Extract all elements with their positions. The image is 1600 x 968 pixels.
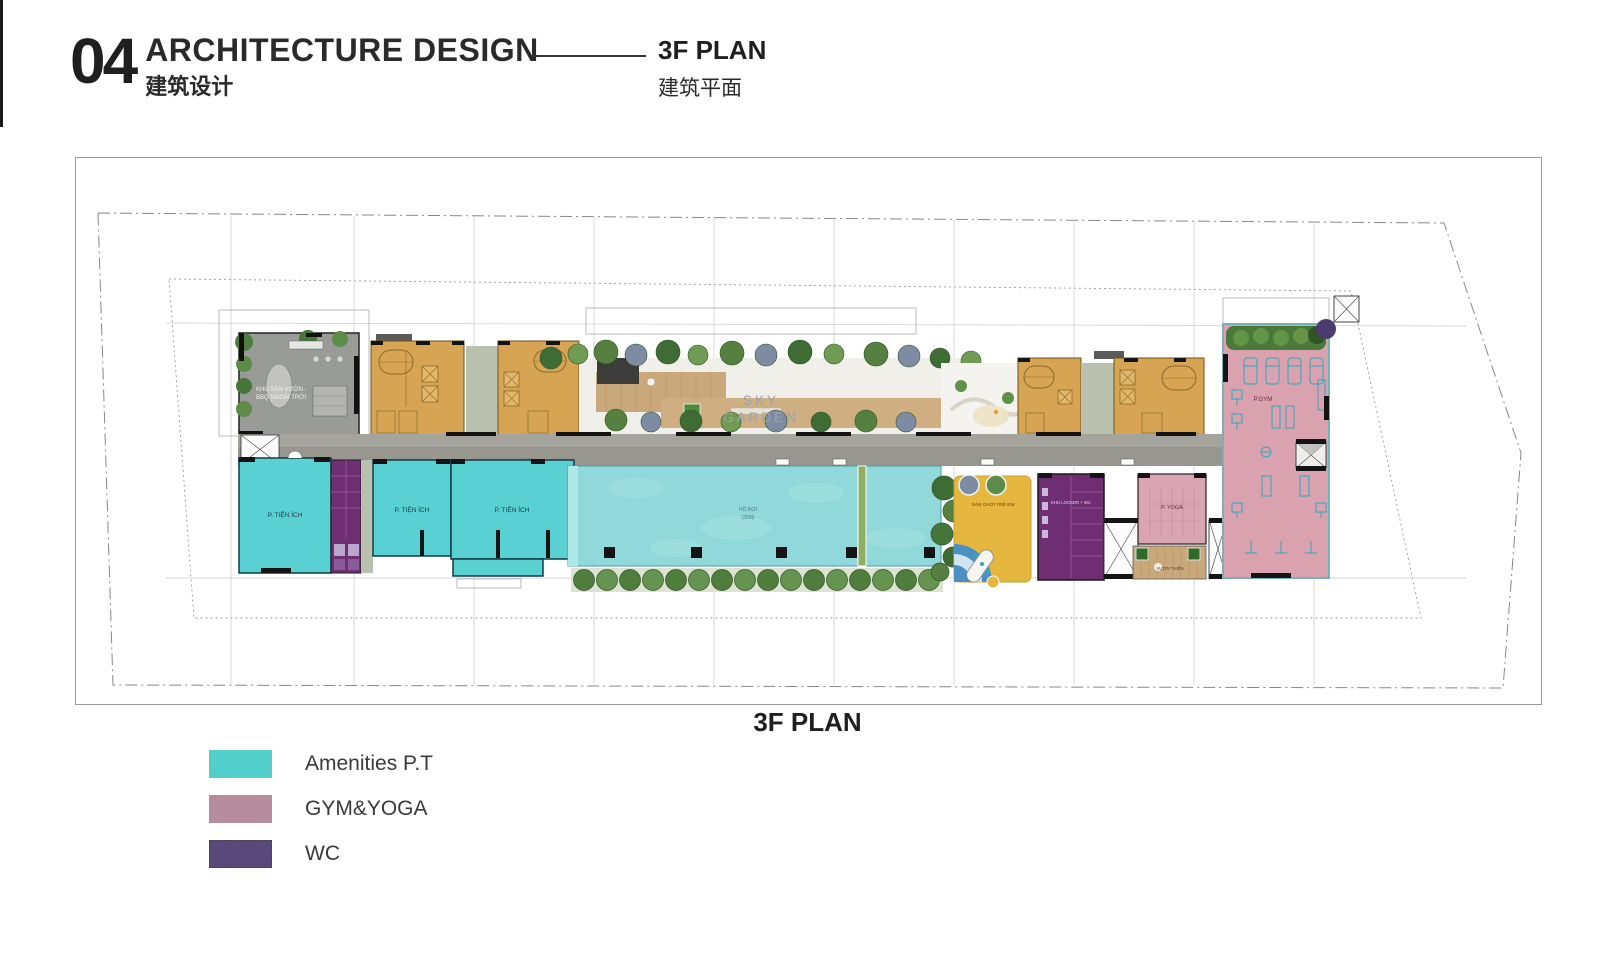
legend-item-amenities: Amenities P.T [209, 750, 433, 778]
gym-label: P.GYM [1254, 397, 1273, 403]
legend-swatch-amenities [209, 750, 272, 778]
sky-garden-label-1: SKY [743, 393, 779, 408]
amenity-room-1: P. TIỆN ÍCH [239, 451, 331, 573]
swimming-pool: HỒ BƠI (25M) [568, 466, 941, 566]
amenity-room-2: P. TIỆN ÍCH [373, 459, 451, 556]
legend-item-wc: WC [209, 840, 433, 868]
pool-label-1: HỒ BƠI [739, 506, 757, 513]
meditation-label: VƯỜN THIỀN [1156, 566, 1183, 571]
legend-label-wc: WC [305, 842, 340, 866]
wc-strip [331, 460, 361, 573]
amenity-room-3: P. TIỆN ÍCH [451, 459, 574, 576]
floor-plan: KHU SÂN VƯỜN - BBQ NGOÀI TRỜI [76, 158, 1541, 704]
slide-header: 04 ARCHITECTURE DESIGN 建筑设计 [70, 30, 539, 101]
legend-swatch-wc [209, 840, 272, 868]
page-title-block: 3F PLAN 建筑平面 [658, 36, 766, 102]
residential-core-c [1018, 358, 1081, 444]
legend-label-amenities: Amenities P.T [305, 752, 433, 776]
amenity-gap [361, 460, 373, 573]
residential-core-a [371, 334, 464, 441]
section-title: ARCHITECTURE DESIGN [145, 34, 539, 66]
pool-label-2: (25M) [741, 515, 754, 521]
section-title-zh: 建筑设计 [145, 69, 539, 101]
residential-core-b [498, 341, 579, 441]
yoga-room: P. YOGA [1138, 473, 1206, 544]
bbq-label-2: BBQ NGOÀI TRỜI [256, 394, 306, 401]
header-divider-line [532, 55, 646, 57]
playground: SÂN CHƠI TRẺ EM [954, 475, 1031, 588]
page-title: 3F PLAN [658, 36, 766, 64]
amenity-1-label: P. TIỆN ÍCH [268, 510, 303, 519]
bbq-label-1: KHU SÂN VƯỜN - [256, 386, 307, 393]
page-title-zh: 建筑平面 [658, 72, 766, 102]
core-gap-cd [1081, 363, 1114, 441]
playground-label: SÂN CHƠI TRẺ EM [972, 501, 1015, 508]
meditation-deck: VƯỜN THIỀN [1133, 546, 1206, 579]
plan-caption: 3F PLAN [75, 707, 1540, 738]
sky-garden: SKY GARDEN [540, 340, 1028, 448]
sky-garden-label-2: GARDEN [723, 410, 799, 425]
legend: Amenities P.T GYM&YOGA WC [209, 750, 433, 885]
legend-swatch-gym-yoga [209, 795, 272, 823]
yoga-label: P. YOGA [1161, 505, 1183, 511]
floor-plan-frame: KHU SÂN VƯỜN - BBQ NGOÀI TRỜI [75, 157, 1542, 705]
locker-wc-room: KHU LOCKER + WC [1038, 473, 1104, 580]
amenity-2-label: P. TIỆN ÍCH [395, 505, 430, 514]
gym-room: P.GYM [1223, 319, 1336, 578]
elevator-shaft-3 [1334, 296, 1359, 322]
section-number: 04 [70, 30, 135, 92]
locker-label: KHU LOCKER + WC [1051, 500, 1091, 505]
core-gap-ab [466, 346, 498, 438]
amenity-3-label: P. TIỆN ÍCH [495, 505, 530, 514]
slide-edge-rule [0, 0, 3, 127]
pool-hedge-row [571, 568, 943, 592]
bbq-terrace: KHU SÂN VƯỜN - BBQ NGOÀI TRỜI [235, 330, 359, 435]
legend-label-gym-yoga: GYM&YOGA [305, 797, 428, 821]
legend-item-gym-yoga: GYM&YOGA [209, 795, 433, 823]
